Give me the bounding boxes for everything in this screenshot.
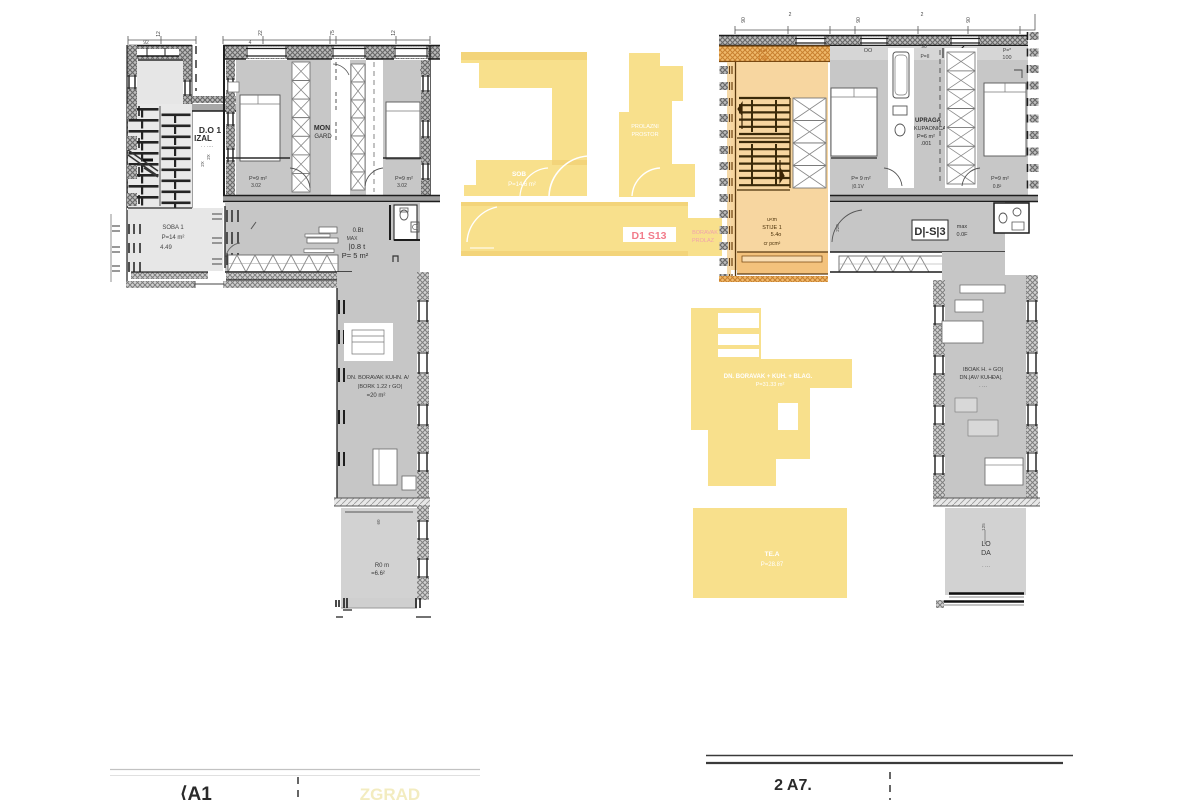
- svg-text:D|-S|3: D|-S|3: [914, 226, 945, 238]
- svg-text:PROSTOR: PROSTOR: [631, 132, 658, 138]
- svg-text:22: 22: [258, 30, 264, 36]
- svg-text:P=31.33 m²: P=31.33 m²: [756, 382, 785, 388]
- svg-text:DN.|AV/ KUHĐA|.: DN.|AV/ KUHĐA|.: [959, 375, 1003, 381]
- svg-text:2 A7.: 2 A7.: [774, 777, 812, 794]
- svg-text:TE.A: TE.A: [765, 551, 780, 558]
- svg-text:GARD: GARD: [314, 134, 332, 140]
- svg-text:LO: LO: [981, 541, 991, 548]
- svg-text:D1 S13: D1 S13: [631, 230, 666, 242]
- svg-text:90: 90: [966, 17, 972, 23]
- svg-text:ZGRAD: ZGRAD: [360, 785, 420, 800]
- svg-text:2: 2: [789, 12, 792, 18]
- svg-text:=6.6²: =6.6²: [371, 571, 385, 577]
- svg-text:P=6 m²: P=6 m²: [917, 134, 935, 140]
- svg-text:P= 9 m²: P= 9 m²: [851, 176, 871, 182]
- svg-text:0.0F: 0.0F: [956, 232, 968, 238]
- svg-text:SOB: SOB: [512, 171, 526, 178]
- svg-text:max: max: [957, 224, 968, 230]
- svg-text:|0.8 t: |0.8 t: [349, 242, 366, 251]
- svg-text:90: 90: [856, 17, 862, 23]
- svg-text:PROLAZNI: PROLAZNI: [631, 124, 659, 130]
- svg-text:75: 75: [330, 30, 336, 36]
- svg-text:0.8²: 0.8²: [993, 184, 1002, 190]
- svg-text:IBOAK H. + GO|: IBOAK H. + GO|: [963, 367, 1003, 373]
- svg-text:0.Bt: 0.Bt: [353, 228, 364, 234]
- svg-text:12: 12: [156, 31, 162, 37]
- svg-text:BORAVAK: BORAVAK: [692, 230, 718, 236]
- svg-text:STIJE 1: STIJE 1: [762, 225, 782, 231]
- svg-text:125: 125: [981, 523, 986, 531]
- svg-text:P=9 m²: P=9 m²: [991, 176, 1009, 182]
- svg-text:P=*: P=*: [1003, 48, 1011, 54]
- svg-text:|BORK 1.22 r GO|: |BORK 1.22 r GO|: [358, 384, 402, 390]
- svg-text:100: 100: [758, 56, 769, 62]
- svg-text:DA: DA: [981, 550, 991, 557]
- svg-text:P=14 m²: P=14 m²: [162, 235, 185, 241]
- svg-text:u<m: u<m: [767, 217, 777, 223]
- svg-text:2: 2: [921, 12, 924, 18]
- svg-text:4.49: 4.49: [160, 245, 172, 251]
- svg-text:90: 90: [921, 44, 927, 50]
- svg-text:DN. BORAVAK KUHN. A/: DN. BORAVAK KUHN. A/: [347, 375, 409, 381]
- svg-text:P=9 m²: P=9 m²: [395, 176, 413, 182]
- svg-text:OO: OO: [864, 48, 873, 54]
- svg-text:P=14.6 m²: P=14.6 m²: [508, 182, 536, 188]
- svg-text:KUPAONICA: KUPAONICA: [914, 126, 946, 132]
- svg-text:P=28.87: P=28.87: [761, 562, 784, 568]
- svg-text:P= 5 m²: P= 5 m²: [342, 251, 369, 260]
- svg-text:3.02: 3.02: [251, 183, 261, 189]
- svg-text:|0.1V: |0.1V: [852, 184, 864, 190]
- svg-text:60: 60: [376, 519, 381, 525]
- svg-text:P=9 m²: P=9 m²: [249, 176, 267, 182]
- svg-text:SOBA 1: SOBA 1: [162, 225, 184, 231]
- svg-text:P=*: P=*: [758, 49, 768, 55]
- svg-text:.001: .001: [921, 141, 932, 147]
- svg-text:12: 12: [391, 30, 397, 36]
- svg-text:5.4o: 5.4o: [771, 232, 782, 238]
- svg-text:· ···: · ···: [982, 564, 990, 570]
- svg-text:2X: 2X: [200, 161, 205, 167]
- svg-text:MON: MON: [314, 125, 330, 132]
- svg-text:P=II: P=II: [920, 54, 929, 60]
- svg-text:UPRAGA: UPRAGA: [915, 118, 942, 124]
- svg-text:· ···: · ···: [979, 384, 987, 390]
- svg-text:· · ····: · · ····: [201, 144, 214, 150]
- svg-text:R0 m: R0 m: [375, 563, 389, 569]
- svg-text:3.02: 3.02: [397, 183, 407, 189]
- svg-text:cr pcm²: cr pcm²: [764, 241, 781, 247]
- svg-text:90: 90: [741, 17, 747, 23]
- svg-text:⟨A1: ⟨A1: [180, 784, 212, 800]
- svg-text:IZAL: IZAL: [194, 134, 212, 143]
- svg-text:2X: 2X: [206, 154, 211, 160]
- svg-text:DN. BORAVAK + KUH. + BLAG.: DN. BORAVAK + KUH. + BLAG.: [724, 374, 813, 380]
- svg-text:=20 m²: =20 m²: [367, 393, 386, 399]
- svg-text:PROLAZ: PROLAZ: [692, 238, 715, 244]
